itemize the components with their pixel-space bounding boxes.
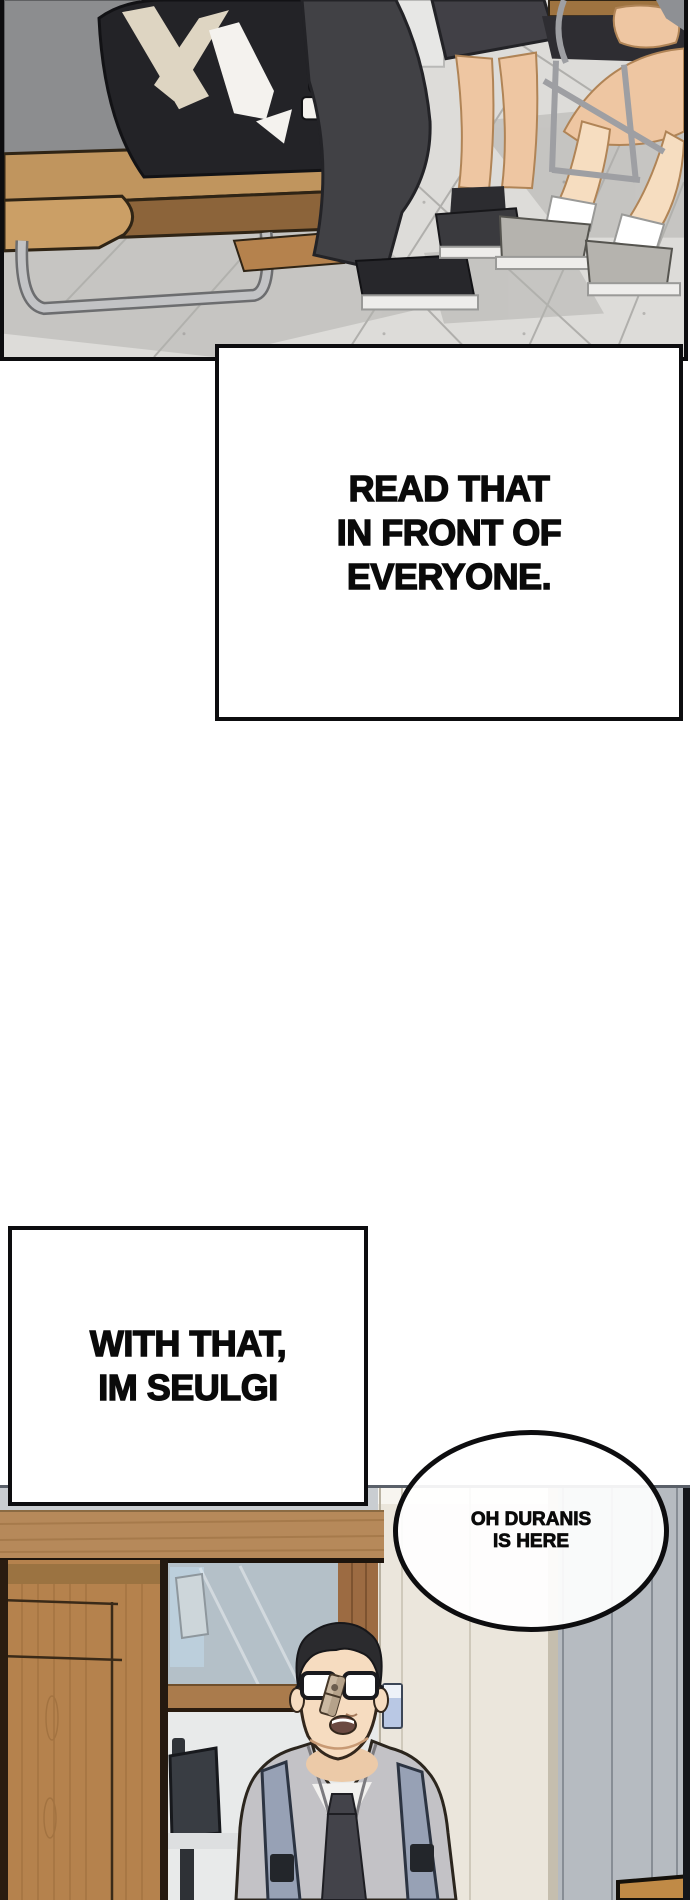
shoe-sole bbox=[362, 295, 478, 309]
wood-cabinet bbox=[0, 1560, 168, 1900]
tan-desk-corner bbox=[618, 1876, 690, 1900]
monitor bbox=[170, 1748, 220, 1838]
header-beam bbox=[0, 1510, 384, 1563]
bubble-text: OH DURANIS IS HERE bbox=[471, 1509, 591, 1553]
page-gap bbox=[0, 725, 690, 1225]
dialog-line: EVERYONE. bbox=[337, 555, 561, 599]
webtoon-page: READ THAT IN FRONT OF EVERYONE. bbox=[0, 0, 690, 1900]
dialog-box-with-that: WITH THAT, IM SEULGI bbox=[8, 1226, 368, 1506]
dialog-line: IN FRONT OF bbox=[337, 511, 561, 555]
bubble-line: IS HERE bbox=[471, 1531, 591, 1553]
panel-right-border bbox=[683, 1488, 690, 1900]
dialog-line: WITH THAT, bbox=[90, 1322, 286, 1366]
desk-leg bbox=[180, 1849, 194, 1900]
strap-buckle bbox=[270, 1854, 294, 1882]
classroom-scene bbox=[4, 0, 684, 357]
ceiling-light-reflection bbox=[176, 1574, 208, 1638]
panel-classroom bbox=[0, 0, 688, 361]
strap-buckle bbox=[410, 1844, 434, 1872]
speech-bubble: OH DURANIS IS HERE bbox=[393, 1430, 669, 1632]
dialog-line: IM SEULGI bbox=[90, 1366, 286, 1410]
dialog-box-read-that: READ THAT IN FRONT OF EVERYONE. bbox=[215, 344, 683, 721]
dialog-line: READ THAT bbox=[337, 467, 561, 511]
mouth-open bbox=[330, 1716, 356, 1734]
bubble-line: OH DURANIS bbox=[471, 1509, 591, 1531]
dialog-text: WITH THAT, IM SEULGI bbox=[90, 1322, 286, 1410]
dialog-text: READ THAT IN FRONT OF EVERYONE. bbox=[337, 467, 561, 599]
